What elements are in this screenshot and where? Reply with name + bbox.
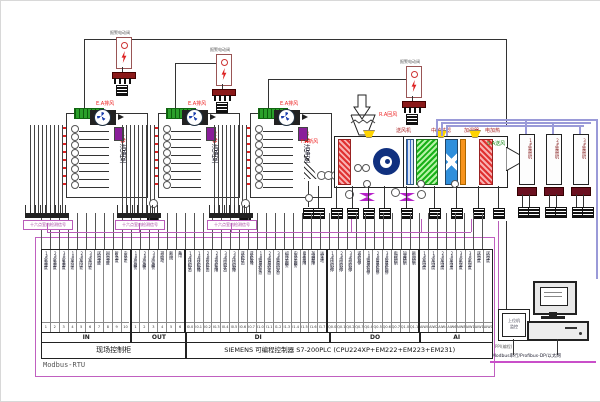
grid-stem [336, 186, 337, 208]
alarm-drop-3 [268, 79, 269, 109]
io-signal-label: 1#室内压差 [70, 251, 74, 322]
io-column: 送风机状态I0.6 [239, 250, 248, 332]
duct-fan-label: 2#管道风机 [548, 138, 559, 158]
pump-icon [391, 188, 400, 197]
fan-blades-icon [97, 112, 106, 121]
io-signal-label: 新风阀控制 [412, 251, 416, 322]
io-signal-label: 远程本地 [320, 251, 324, 322]
grid-stem [498, 186, 499, 208]
exhaust-air-label: E.A排风 [280, 100, 298, 107]
room-sensor-icon [71, 173, 79, 181]
io-column: 1#管道风机启停Q0.4 [364, 250, 373, 332]
prefilter-icon [338, 139, 351, 185]
io-address: Q0.5 [373, 322, 381, 332]
alarm-lamp-icon [411, 71, 418, 78]
io-section-header: DO [331, 333, 421, 342]
io-signal-label: 1#排风机状态 [188, 251, 192, 322]
monitor-wire [506, 221, 507, 309]
junction-bar [117, 213, 161, 218]
room-louvers [79, 126, 109, 188]
io-address: I1.2 [274, 322, 282, 332]
grid-stem [478, 186, 479, 208]
io-address: I0.2 [204, 322, 212, 332]
exhaust-fan-icon [94, 109, 111, 126]
io-signal-label: 1#声光报警 [133, 251, 137, 322]
duct-drop [525, 120, 527, 134]
room-sensor-icon [255, 133, 263, 141]
lightning-icon [220, 68, 228, 80]
io-column: 送风温湿度7 [95, 250, 104, 332]
room-sensor-icon [255, 157, 263, 165]
io-column: 2#室内压差5 [77, 250, 86, 332]
io-column: 2#管道风机启停Q0.5 [373, 250, 382, 332]
lightning-icon [120, 51, 128, 63]
junction-comb [25, 205, 69, 213]
io-signal-label: 排风联动 [160, 251, 164, 322]
io-address: 1 [132, 322, 140, 332]
ahu-sensor-icon [354, 164, 362, 172]
io-address: 1 [42, 322, 50, 332]
fan-blades-icon [281, 112, 290, 121]
io-address: I1.6 [309, 322, 317, 332]
comm-link-label: Modbus串行/Profibus-DP/以太网 [492, 353, 561, 359]
io-signal-label: 中效压差 [124, 251, 128, 322]
hvac-scada-diagram: 报警电动阀报警电动阀报警电动阀 1#洁净室E.A排风2#洁净室E.A排风3#洁净… [0, 0, 600, 402]
alarm-wire-3 [268, 79, 421, 80]
io-address: I1.3 [283, 322, 291, 332]
io-address: I0.3 [212, 322, 220, 332]
io-address: 6 [176, 322, 184, 332]
room-sensor-icon [163, 133, 171, 141]
io-column: 1#室温湿度1 [42, 250, 51, 332]
io-signal-label: 2#室内温度 [440, 251, 444, 322]
io-column: 3#管道风机状态I1.2 [274, 250, 283, 332]
lightning-icon [410, 80, 418, 92]
io-signal-label: 2#排风机状态 [206, 251, 210, 322]
arrow-right-icon [118, 114, 124, 120]
return-air-label: R.A回风 [379, 111, 397, 118]
cabinet-cell: 现场控制柜 [42, 343, 187, 358]
room-sensor-icon [255, 181, 263, 189]
alarm-drop-2 [175, 63, 176, 109]
io-section-in: 1#室温湿度12#室温湿度23#室温湿度31#室内压差42#室内压差53#室内压… [42, 250, 132, 332]
io-column: 2#室内湿度AIW6 [447, 250, 456, 332]
io-address: 5 [77, 322, 85, 332]
io-signal-label: 送风温湿度 [97, 251, 101, 322]
io-column: 回风温湿度8 [104, 250, 113, 332]
io-address: 2 [51, 322, 59, 332]
field-bus-line [47, 232, 471, 233]
io-signal-label: 3#排风机故障 [232, 251, 236, 322]
io-column: 新风温度9 [113, 250, 122, 332]
alarm-lamp-icon [221, 59, 228, 66]
io-signal-label: 新风温度 [115, 251, 119, 322]
io-column: 送风机故障I0.7 [248, 250, 257, 332]
io-signal-label: 电加热故障 [302, 251, 306, 322]
io-signal-label: 2#室内湿度 [449, 251, 453, 322]
fan-wire [529, 194, 530, 207]
io-column: 1#室内湿度AIW2 [429, 250, 438, 332]
io-signal-label: 送风机状态 [241, 251, 245, 322]
io-address: I1.7 [318, 322, 326, 332]
io-address: I1.4 [292, 322, 300, 332]
io-address: 3 [149, 322, 157, 332]
connector-grid-icon [493, 208, 505, 219]
io-signal-label: 1#排风机启停 [330, 251, 334, 322]
alarm-valve-icon [116, 37, 132, 69]
io-signal-label: 3#室温湿度 [62, 251, 66, 322]
io-address: Q0.0 [328, 322, 336, 332]
heater-label: 电加热 [485, 127, 500, 134]
connector-grid-icon [528, 207, 540, 218]
io-signal-label: 回风温湿度 [106, 251, 110, 322]
io-address: AIW6 [447, 322, 455, 332]
alarm-valve-icon [406, 66, 422, 98]
pump-icon [417, 190, 426, 199]
io-column: 2#室内温度AIW4 [438, 250, 447, 332]
io-address: 8 [104, 322, 112, 332]
arrow-right-icon [302, 114, 308, 120]
room-sensor-icon [255, 173, 263, 181]
io-signal-label: 3#室内压差 [88, 251, 92, 322]
butterfly-valve-icon [399, 193, 415, 201]
alarm-unit-label: 报警电动阀 [210, 47, 230, 53]
io-column: 3#排风机故障I0.5 [230, 250, 239, 332]
junction-comb [209, 205, 253, 213]
fan-base-icon [517, 187, 537, 196]
pc-monitor-icon [533, 281, 577, 315]
duct-drop [552, 123, 554, 134]
io-address: AIW12 [475, 322, 483, 332]
grid-stem [352, 186, 353, 208]
ppi-label: PPI(编程) [495, 344, 512, 350]
io-column: 1#室内温度AIW0 [420, 250, 429, 332]
plc-cell: SIEMENS 可编程控制器 S7-200PLC (CPU224XP+EM222… [187, 343, 492, 358]
io-signal-label: 2#室内压差 [79, 251, 83, 322]
field-wires [41, 213, 491, 249]
supply-fan-label: 送风机 [396, 127, 411, 134]
junction-label: 十六点室内检测信号 [115, 220, 165, 230]
io-signal-label: 送风机故障 [250, 251, 254, 322]
io-signal-label: 3#室内温度 [459, 251, 463, 322]
grid-stem [434, 186, 435, 208]
room-sensor-icon [71, 141, 79, 149]
air-handling-unit [334, 136, 508, 188]
io-signal-label: 送风机启停 [357, 251, 361, 322]
io-signal-label: 2#排风机故障 [214, 251, 218, 322]
io-column: 2#管道风机状态I1.1 [265, 250, 274, 332]
io-signal-label: 1#室内湿度 [431, 251, 435, 322]
io-signal-label: 2#管道风机启停 [376, 251, 380, 322]
io-address: Q0.7 [392, 322, 400, 332]
io-column: 3#排风机启停Q0.2 [346, 250, 355, 332]
field-bus-drop [471, 219, 472, 232]
connector-grid-icon [116, 85, 128, 96]
io-address: AIW0 [420, 322, 428, 332]
io-column: 中效压差10 [122, 250, 130, 332]
room-sensor-icon [255, 149, 263, 157]
room-louvers [263, 126, 293, 188]
grid-stem [406, 186, 407, 208]
io-address: 6 [86, 322, 94, 332]
exhaust-fan-icon [186, 109, 203, 126]
fan-wire [583, 194, 584, 207]
fan-base-icon [571, 187, 591, 196]
supply-duct-line [441, 122, 591, 124]
io-address: Q0.4 [364, 322, 372, 332]
io-section-di: 1#排风机状态I0.01#排风机故障I0.12#排风机状态I0.22#排风机故障… [186, 250, 328, 332]
io-signal-label: 2#室温湿度 [53, 251, 57, 322]
field-bus-drop [351, 219, 352, 232]
io-column: 3#室内温度AIW8 [457, 250, 466, 332]
io-address: Q0.3 [355, 322, 363, 332]
io-column: 3#室温湿度3 [60, 250, 69, 332]
junction-bar [209, 213, 253, 218]
alarm-wire-1 [84, 39, 506, 40]
room-sensor-icon [71, 133, 79, 141]
io-address: AIW8 [457, 322, 465, 332]
room-sensor-icon [255, 165, 263, 173]
io-column: 1#排风机状态I0.0 [186, 250, 195, 332]
junction-label: 十六点室内检测信号 [207, 220, 257, 230]
io-signal-label: 3#声光报警 [151, 251, 155, 322]
io-section-out: 1#声光报警12#声光报警23#声光报警3排风联动4新风阀5备用6 [132, 250, 187, 332]
io-address: I0.4 [221, 322, 229, 332]
io-column: 3#管道风机启停Q0.6 [383, 250, 392, 332]
io-address: I0.5 [230, 322, 238, 332]
io-section-header: DI [187, 333, 330, 342]
room-sensor-icon [163, 149, 171, 157]
io-signal-label: 3#管道风机启停 [385, 251, 389, 322]
io-column: 送风湿度AIW14 [484, 250, 492, 332]
alarm-unit-label: 报警电动阀 [110, 30, 130, 36]
alarm-drop-1 [84, 39, 85, 109]
io-column: 3#排风机状态I0.4 [221, 250, 230, 332]
io-signal-label: 1#管道风机状态 [258, 251, 262, 322]
comm-link-line [490, 361, 596, 363]
fresh-air-label: F.A新风 [301, 138, 318, 145]
duct-drop-right [596, 119, 598, 279]
io-address: 7 [95, 322, 103, 332]
fan-wire [522, 194, 523, 207]
io-section-header: AI [421, 333, 492, 342]
field-bus-drop [231, 223, 232, 232]
medium-filter-icon [416, 139, 438, 185]
io-signal-label: 送风温度 [477, 251, 481, 322]
field-bus-drop [139, 223, 140, 232]
io-address: 2 [140, 322, 148, 332]
io-address: I0.6 [239, 322, 247, 332]
alarm-unit-label: 报警电动阀 [400, 59, 420, 65]
io-address: 4 [69, 322, 77, 332]
io-column: 加湿器控制Q1.0 [401, 250, 410, 332]
room-sensor-icon [163, 141, 171, 149]
alarm-lamp-icon [121, 42, 128, 49]
alarm-valve-icon [216, 54, 232, 86]
io-column: 备用6 [176, 250, 184, 332]
io-column: 电加热控制Q0.7 [392, 250, 401, 332]
io-section-do: 1#排风机启停Q0.02#排风机启停Q0.13#排风机启停Q0.2送风机启停Q0… [328, 250, 420, 332]
io-column: 加湿器故障I1.6 [309, 250, 318, 332]
io-column: 送风机启停Q0.3 [355, 250, 364, 332]
io-address: I1.0 [257, 322, 265, 332]
io-address: I0.0 [186, 322, 194, 332]
exhaust-air-label: E.A排风 [188, 100, 206, 107]
io-address: AIW14 [484, 322, 492, 332]
duct-riser [441, 122, 443, 136]
io-column: 1#声光报警1 [132, 250, 141, 332]
io-address: 9 [113, 322, 121, 332]
modbus-rtu-label: Modbus-RTU [43, 361, 85, 369]
host-interface-label: 上位机 监控 [502, 313, 526, 337]
io-signal-label: 3#排风机启停 [348, 251, 352, 322]
io-signal-label: 1#排风机故障 [197, 251, 201, 322]
room-sensor-icon [71, 149, 79, 157]
supply-air-label: S.A送风 [487, 140, 505, 147]
io-address: 4 [158, 322, 166, 332]
duct-fan-label: 3#管道风机 [575, 138, 586, 158]
room-wire-bundle [30, 125, 64, 213]
io-signal-label: 中效压差报警 [294, 251, 298, 322]
io-address: 5 [167, 322, 175, 332]
right-riser-line [506, 39, 507, 127]
io-column: 初效压差报警I1.3 [283, 250, 292, 332]
coil-icon [406, 139, 414, 185]
clean-room-3: 3#洁净室 [250, 113, 332, 198]
io-column: 新风阀5 [167, 250, 176, 332]
junction-bar [25, 213, 69, 218]
io-address: AIW10 [466, 322, 474, 332]
grid-stem [384, 186, 385, 208]
connector-grid-icon [582, 207, 594, 218]
duct-fan-label: 1#管道风机 [521, 138, 532, 158]
io-column: 1#排风机启停Q0.0 [328, 250, 337, 332]
supply-duct-line [436, 119, 598, 121]
io-column: 2#排风机状态I0.2 [204, 250, 213, 332]
io-column: 排风联动4 [158, 250, 167, 332]
io-address: AIW2 [429, 322, 437, 332]
sensor-icon [305, 194, 313, 202]
io-signal-label: 加湿器控制 [403, 251, 407, 322]
io-address: Q0.1 [337, 322, 345, 332]
io-signal-label: 1#管道风机启停 [366, 251, 370, 322]
io-signal-label: 2#声光报警 [142, 251, 146, 322]
alarm-pins-icon [404, 107, 422, 113]
io-signal-label: 2#管道风机状态 [267, 251, 271, 322]
ahu-sensor-icon [362, 164, 370, 172]
io-column: 3#声光报警3 [149, 250, 158, 332]
io-address: I0.7 [248, 322, 256, 332]
field-bus-drop [421, 219, 422, 232]
connector-grid-icon [555, 207, 567, 218]
io-address: I1.5 [301, 322, 309, 332]
io-address: Q1.1 [410, 322, 418, 332]
io-column: 2#室温湿度2 [51, 250, 60, 332]
io-address: I1.1 [265, 322, 273, 332]
io-signal-label: 3#排风机状态 [223, 251, 227, 322]
room-sensor-icon [71, 125, 79, 133]
junction-label: 十六点室内检测信号 [23, 220, 73, 230]
io-column: 3#室内湿度AIW10 [466, 250, 475, 332]
io-address: 3 [60, 322, 68, 332]
io-signal-label: 初效压差报警 [285, 251, 289, 322]
room-sensor-icon [163, 181, 171, 189]
ahu-sensor-icon [451, 180, 459, 188]
fan-base-icon [544, 187, 564, 196]
heater-coil-icon [460, 139, 466, 185]
io-address: 10 [122, 322, 130, 332]
io-signal-label: 加湿器故障 [311, 251, 315, 322]
io-address: Q0.6 [383, 322, 391, 332]
io-column: 1#排风机故障I0.1 [195, 250, 204, 332]
io-column: 2#声光报警2 [140, 250, 149, 332]
room-sensor-icon [163, 165, 171, 173]
io-address: I0.1 [195, 322, 203, 332]
io-signal-label: 送风湿度 [486, 251, 490, 322]
io-address: AIW4 [438, 322, 446, 332]
io-column: 电加热故障I1.5 [301, 250, 310, 332]
io-column: 2#排风机故障I0.3 [212, 250, 221, 332]
supply-fan-icon [373, 148, 400, 175]
fan-wire [556, 194, 557, 207]
io-signal-label: 电加热控制 [394, 251, 398, 322]
alarm-pins-icon [214, 95, 232, 101]
monitor-bus-line [498, 221, 499, 309]
io-column: 1#室内压差4 [69, 250, 78, 332]
fan-wire [549, 194, 550, 207]
room-louvers [171, 126, 201, 188]
io-column: 送风温度AIW12 [475, 250, 484, 332]
grid-stem [318, 186, 319, 208]
duct-riser [436, 119, 438, 136]
io-signal-label: 1#室内温度 [422, 251, 426, 322]
io-signal-label: 1#室温湿度 [44, 251, 48, 322]
exhaust-air-label: E.A排风 [96, 100, 114, 107]
ahu-divider [403, 137, 404, 187]
room-sensor-icon [255, 141, 263, 149]
io-section-header: OUT [132, 333, 187, 342]
io-signal-label: 3#室内湿度 [468, 251, 472, 322]
butterfly-valve-icon [359, 193, 375, 201]
junction-comb [117, 205, 161, 213]
io-address: Q0.2 [346, 322, 354, 332]
io-section-ai: 1#室内温度AIW01#室内湿度AIW22#室内温度AIW42#室内湿度AIW6… [420, 250, 492, 332]
room-sensor-icon [71, 181, 79, 189]
io-address: Q1.0 [401, 322, 409, 332]
room-sensor-icon [71, 157, 79, 165]
field-bus-drop [47, 223, 48, 232]
io-column: 1#管道风机状态I1.0 [257, 250, 266, 332]
monitor-base [541, 316, 565, 319]
ahu-sensor-icon [363, 180, 371, 188]
io-column: 新风阀控制Q1.1 [410, 250, 418, 332]
room-sensor-icon [163, 125, 171, 133]
ahu-sensor-icon [417, 180, 425, 188]
io-section-header: IN [42, 333, 132, 342]
pc-case-icon [527, 321, 589, 341]
io-column: 3#室内压差6 [86, 250, 95, 332]
grid-stem [456, 186, 457, 208]
fan-wire [576, 194, 577, 207]
host-interface-box: 上位机 监控 [498, 309, 530, 341]
duct-riser [446, 125, 448, 136]
duct-fan-1: 1#管道风机 [519, 134, 535, 185]
return-air-funnel-icon [346, 93, 381, 139]
duct-fan-2: 2#管道风机 [546, 134, 562, 185]
plc-io-table: 1#室温湿度12#室温湿度23#室温湿度31#室内压差42#室内压差53#室内压… [41, 249, 493, 359]
duct-fan-3: 3#管道风机 [573, 134, 589, 185]
room-sensor-icon [163, 157, 171, 165]
